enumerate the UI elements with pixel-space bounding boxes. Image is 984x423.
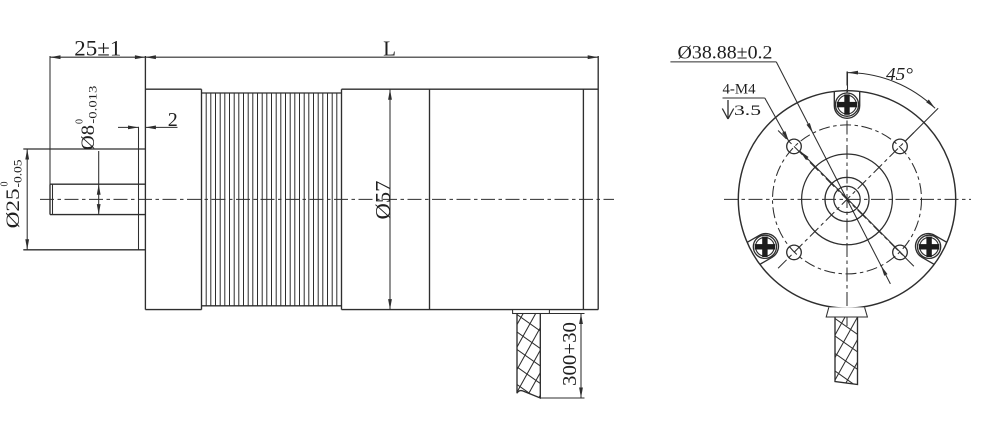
svg-text:2: 2 — [168, 109, 178, 131]
svg-text:Ø8: Ø8 — [78, 125, 99, 150]
svg-text:L: L — [383, 37, 396, 61]
svg-text:300+30: 300+30 — [559, 322, 581, 386]
svg-text:4-M4: 4-M4 — [723, 82, 757, 98]
svg-text:3.5: 3.5 — [734, 103, 761, 119]
svg-text:0: 0 — [0, 182, 11, 187]
svg-text:Ø57: Ø57 — [371, 181, 395, 220]
svg-text:0: 0 — [75, 119, 86, 124]
svg-text:-0.05: -0.05 — [11, 160, 25, 188]
svg-text:-0.013: -0.013 — [86, 86, 100, 124]
svg-text:45°: 45° — [886, 64, 913, 84]
svg-text:25±1: 25±1 — [74, 36, 121, 61]
svg-text:Ø38.88±0.2: Ø38.88±0.2 — [678, 42, 773, 63]
svg-text:Ø25: Ø25 — [3, 188, 24, 228]
